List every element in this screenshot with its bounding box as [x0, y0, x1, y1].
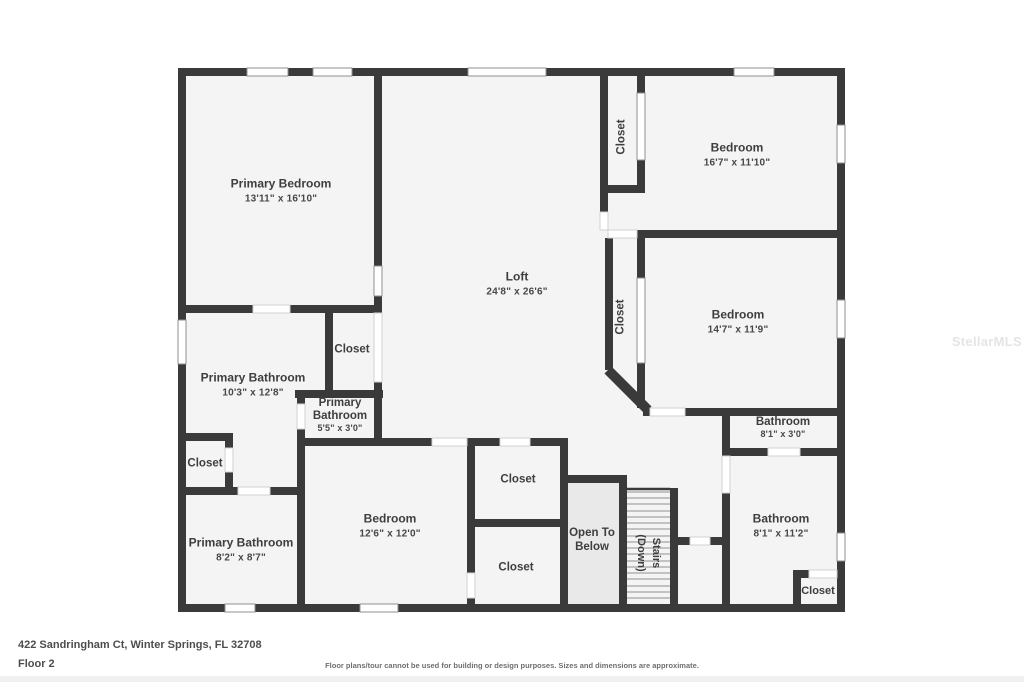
label-primary-bathroom-lower: Primary Bathroom 8'2" x 8'7" [189, 536, 294, 565]
label-closet-pair-lower: Closet [498, 561, 533, 576]
label-closet-pair-upper: Closet [500, 473, 535, 488]
label-loft: Loft 24'8" x 26'6" [486, 270, 547, 299]
label-bedroom-mid-right: Bedroom 14'7" x 11'9" [708, 308, 769, 337]
label-closet-mid-right: Closet [614, 299, 629, 334]
label-bathroom-right: Bathroom 8'1" x 11'2" [753, 512, 810, 541]
property-address: 422 Sandringham Ct, Winter Springs, FL 3… [18, 639, 262, 651]
label-closet-left: Closet [187, 457, 222, 472]
label-closet-center: Closet [334, 343, 369, 358]
label-stairs: Stairs (Down) [633, 534, 663, 571]
label-bathroom-small: Bathroom 8'1" x 3'0" [756, 416, 810, 440]
bottom-divider [0, 676, 1024, 682]
floor-plan-page: Primary Bedroom 13'11" x 16'10" Loft 24'… [0, 0, 1024, 682]
label-closet-top-right: Closet [615, 119, 630, 154]
label-bedroom-bottom: Bedroom 12'6" x 12'0" [359, 512, 420, 541]
label-primary-bedroom: Primary Bedroom 13'11" x 16'10" [231, 177, 332, 206]
stellar-mls-watermark: StellarMLS [938, 334, 1022, 349]
label-open-to-below: Open To Below [561, 527, 623, 555]
disclaimer-text: Floor plans/tour cannot be used for buil… [0, 661, 1024, 670]
floor-plan-drawing [0, 0, 1024, 682]
label-bedroom-top-right: Bedroom 16'7" x 11'10" [704, 141, 771, 170]
label-closet-bottom-right: Closet [801, 584, 835, 598]
label-primary-bathroom-large: Primary Bathroom 10'3" x 12'8" [201, 371, 306, 400]
label-primary-bathroom-small: Primary Bathroom 5'5" x 3'0" [301, 397, 379, 435]
